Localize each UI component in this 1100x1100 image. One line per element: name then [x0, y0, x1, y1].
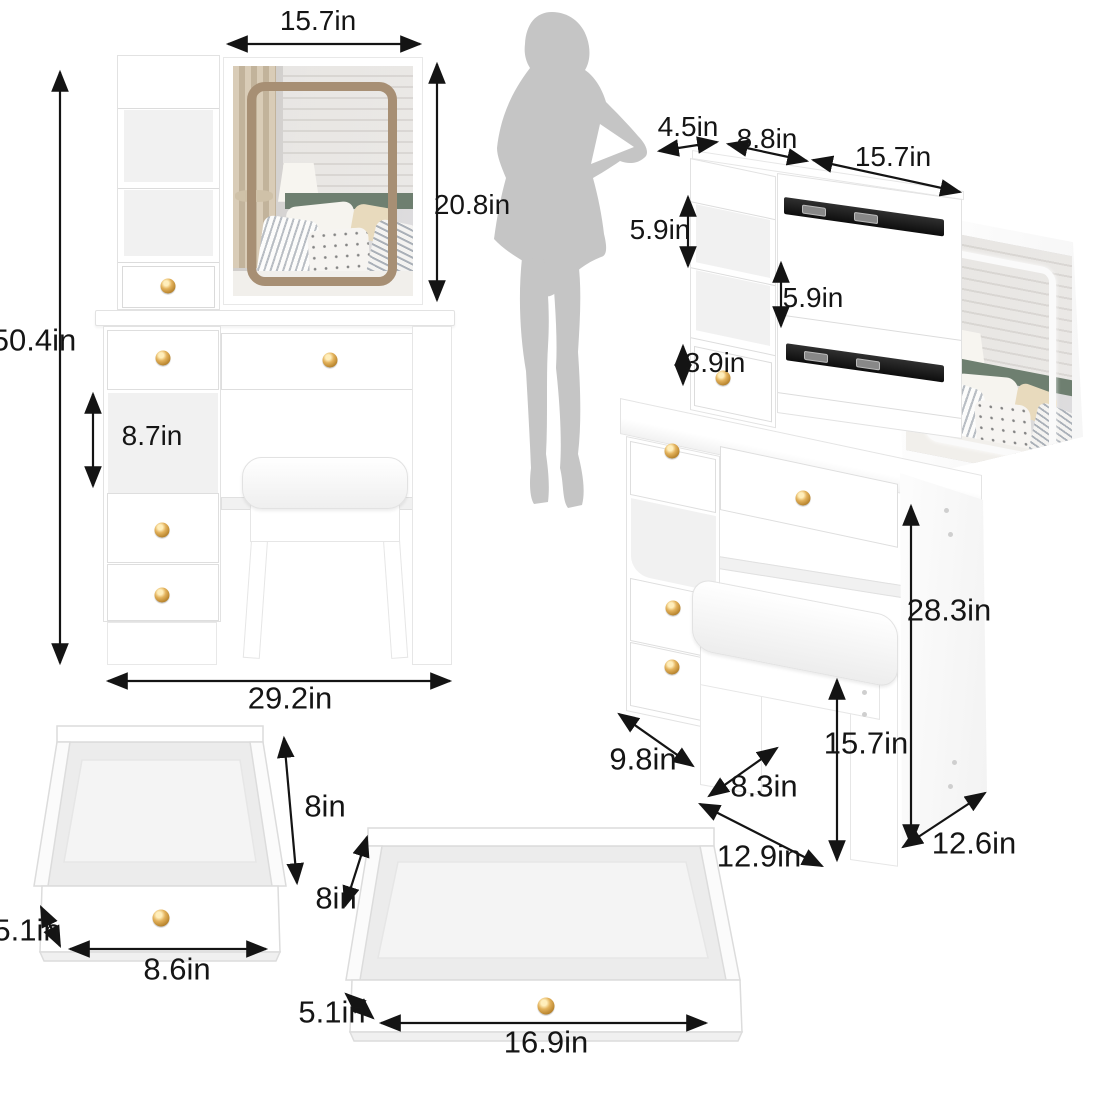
dim-mirror-height: 20.8in	[434, 191, 510, 219]
shelf-board	[778, 310, 961, 341]
open-shelf-compartment	[631, 498, 716, 592]
desk-right-leg	[412, 326, 452, 665]
screw-hole	[948, 532, 953, 537]
screw-hole	[952, 760, 957, 765]
desk-right-side-panel	[896, 466, 991, 856]
dim-lower-shelf-height: 5.9in	[783, 284, 844, 312]
dim-large-drawer-width: 16.9in	[504, 1027, 588, 1058]
drawer-slide-rail	[786, 343, 944, 382]
dim-small-drawer-width: 8.6in	[143, 954, 210, 985]
mirror-reflection	[233, 66, 413, 296]
hutch-shelf-column	[690, 158, 776, 428]
dim-hutch-depth: 8.8in	[737, 125, 798, 153]
drawer-knob-icon	[323, 353, 338, 368]
dim-desk-side-depth: 9.8in	[609, 744, 676, 775]
dim-large-drawer-height: 5.1in	[298, 997, 365, 1028]
drawer-knob-icon	[155, 523, 170, 538]
shelf-cubby	[124, 190, 213, 256]
shelf-board	[118, 184, 219, 189]
drawer-knob-icon	[153, 910, 170, 927]
drawer-knob-icon	[155, 588, 170, 603]
stool-leg-left	[243, 540, 268, 659]
dim-stool-height: 15.7in	[824, 728, 908, 759]
screw-hole	[948, 784, 953, 789]
drawer-knob-icon	[538, 998, 555, 1015]
dim-total-height: 50.4in	[0, 325, 76, 356]
dim-tabletop-height: 28.3in	[907, 595, 991, 626]
desk-base-kick	[107, 622, 217, 665]
hutch-tower	[117, 55, 220, 310]
drawer-slide-rail	[784, 197, 944, 236]
desk-tabletop	[95, 310, 455, 326]
shelf-board	[118, 104, 219, 109]
dim-shelf-opening-height: 8.7in	[122, 422, 183, 450]
dim-mirror-slide-width: 15.7in	[855, 143, 931, 171]
shelf-cubby	[124, 110, 213, 182]
drawer-knob-icon	[666, 601, 681, 616]
stool-cushion	[242, 457, 408, 509]
drawer-knob-icon	[156, 351, 171, 366]
stool-leg-right	[383, 540, 408, 659]
dim-large-drawer-depth: 8in	[315, 883, 356, 914]
drawer-knob-icon	[665, 444, 680, 459]
drawer-knob-icon	[161, 279, 176, 294]
screw-hole	[862, 712, 867, 717]
dim-top-shelf-depth: 4.5in	[658, 113, 719, 141]
product-dimension-diagram: 15.7in 20.8in 50.4in 8.7in 29.2in 4.5in …	[0, 0, 1100, 1100]
mirror-panel-front	[223, 57, 423, 305]
screw-hole	[944, 508, 949, 513]
shelf-board	[778, 388, 961, 419]
drawer-knob-icon	[665, 660, 680, 675]
drawer-knob-icon	[796, 491, 811, 506]
dim-stool-width: 12.9in	[717, 841, 801, 872]
dim-total-width: 29.2in	[248, 683, 332, 714]
shelf-board	[118, 258, 219, 263]
desk-left-column	[103, 326, 221, 622]
dim-small-drawer-depth: 8in	[304, 791, 345, 822]
led-mirror-frame	[247, 82, 397, 286]
dim-side-panel-depth: 12.6in	[932, 828, 1016, 859]
dim-mirror-width: 15.7in	[280, 7, 356, 35]
dim-upper-shelf-height: 5.9in	[630, 216, 691, 244]
dim-hutch-drawer-height: 3.9in	[685, 349, 746, 377]
dim-small-drawer-height: 5.1in	[0, 915, 61, 946]
screw-hole	[862, 690, 867, 695]
dim-stool-seat-depth: 8.3in	[730, 771, 797, 802]
